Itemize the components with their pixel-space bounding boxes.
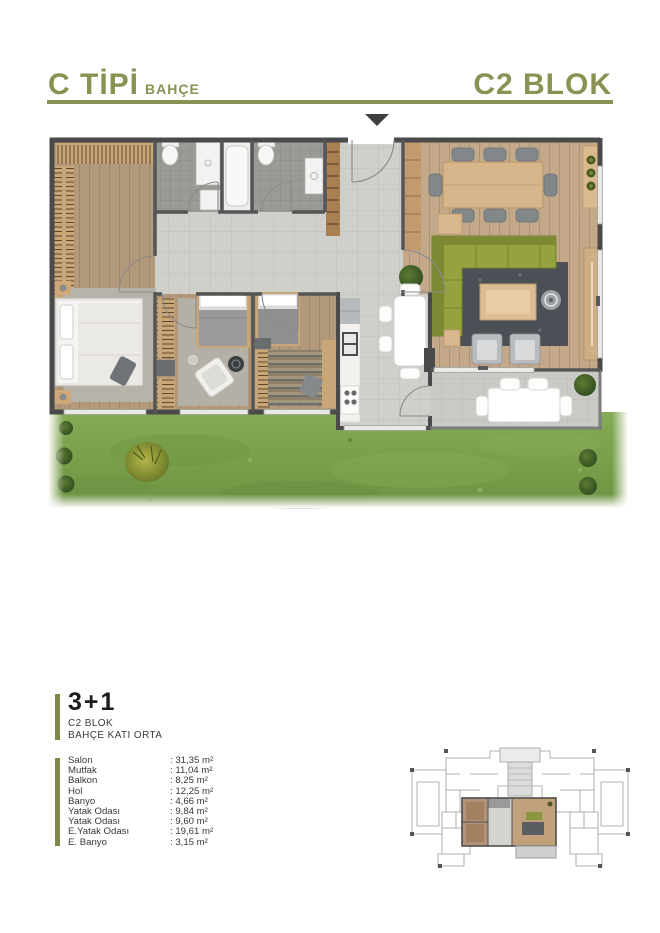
page-title: C TİPİBAHÇE [48, 68, 200, 102]
key-plan-graphic [408, 744, 632, 878]
room-area: : 19,61 m² [170, 827, 213, 837]
room-name: E. Banyo [68, 838, 107, 848]
floor-plan-graphic [35, 108, 630, 513]
brochure-page: C TİPİBAHÇE C2 BLOK [0, 0, 660, 933]
bedroom-1-furniture [157, 292, 250, 410]
unit-floor-label: BAHÇE KATI ORTA [68, 730, 162, 741]
accent-bar [55, 694, 60, 740]
entrance-marker-icon [365, 114, 389, 126]
header-divider [47, 100, 613, 104]
area-row: E. Banyo: 3,15 m² [55, 838, 275, 848]
room-name: E.Yatak Odası [68, 827, 129, 837]
unit-layout-label: 3+1 [68, 688, 116, 717]
terrace-plant [574, 374, 596, 396]
room-area: : 3,15 m² [170, 838, 208, 848]
area-row: E.Yatak Odası: 19,61 m² [55, 827, 275, 837]
area-row: Balkon: 8,25 m² [55, 776, 275, 786]
key-plan-highlighted-unit [462, 798, 556, 858]
room-area-list: Salon: 31,35 m² Mutfak: 11,04 m² Balkon:… [55, 756, 275, 848]
block-title: C2 BLOK [473, 68, 612, 102]
type-sub-label: BAHÇE [145, 81, 200, 97]
unit-block-label: C2 BLOK [68, 718, 113, 729]
type-label: C TİPİ [48, 68, 139, 101]
